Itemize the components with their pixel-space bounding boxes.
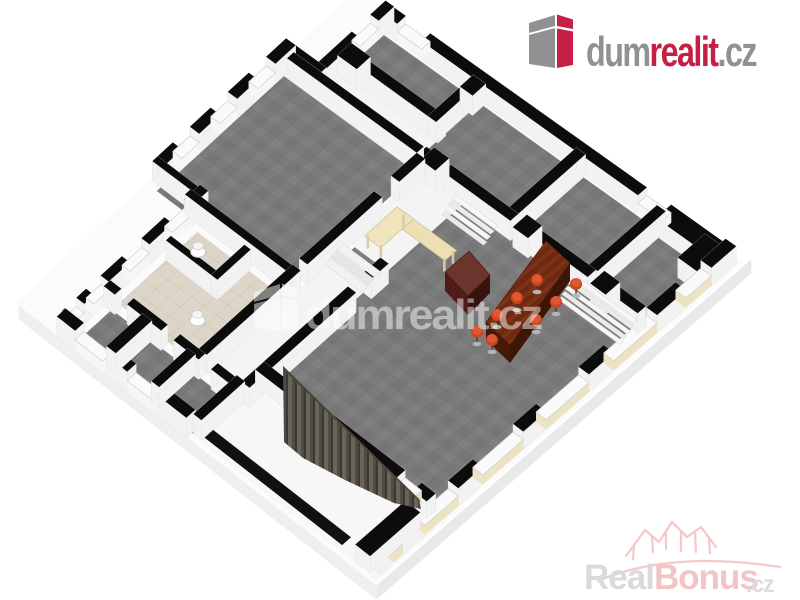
svg-text:.cz: .cz (746, 571, 774, 597)
svg-text:dumrealit.cz: dumrealit.cz (305, 291, 542, 338)
svg-text:RealBonus: RealBonus (584, 558, 758, 597)
svg-text:dumrealit.cz: dumrealit.cz (586, 28, 757, 75)
